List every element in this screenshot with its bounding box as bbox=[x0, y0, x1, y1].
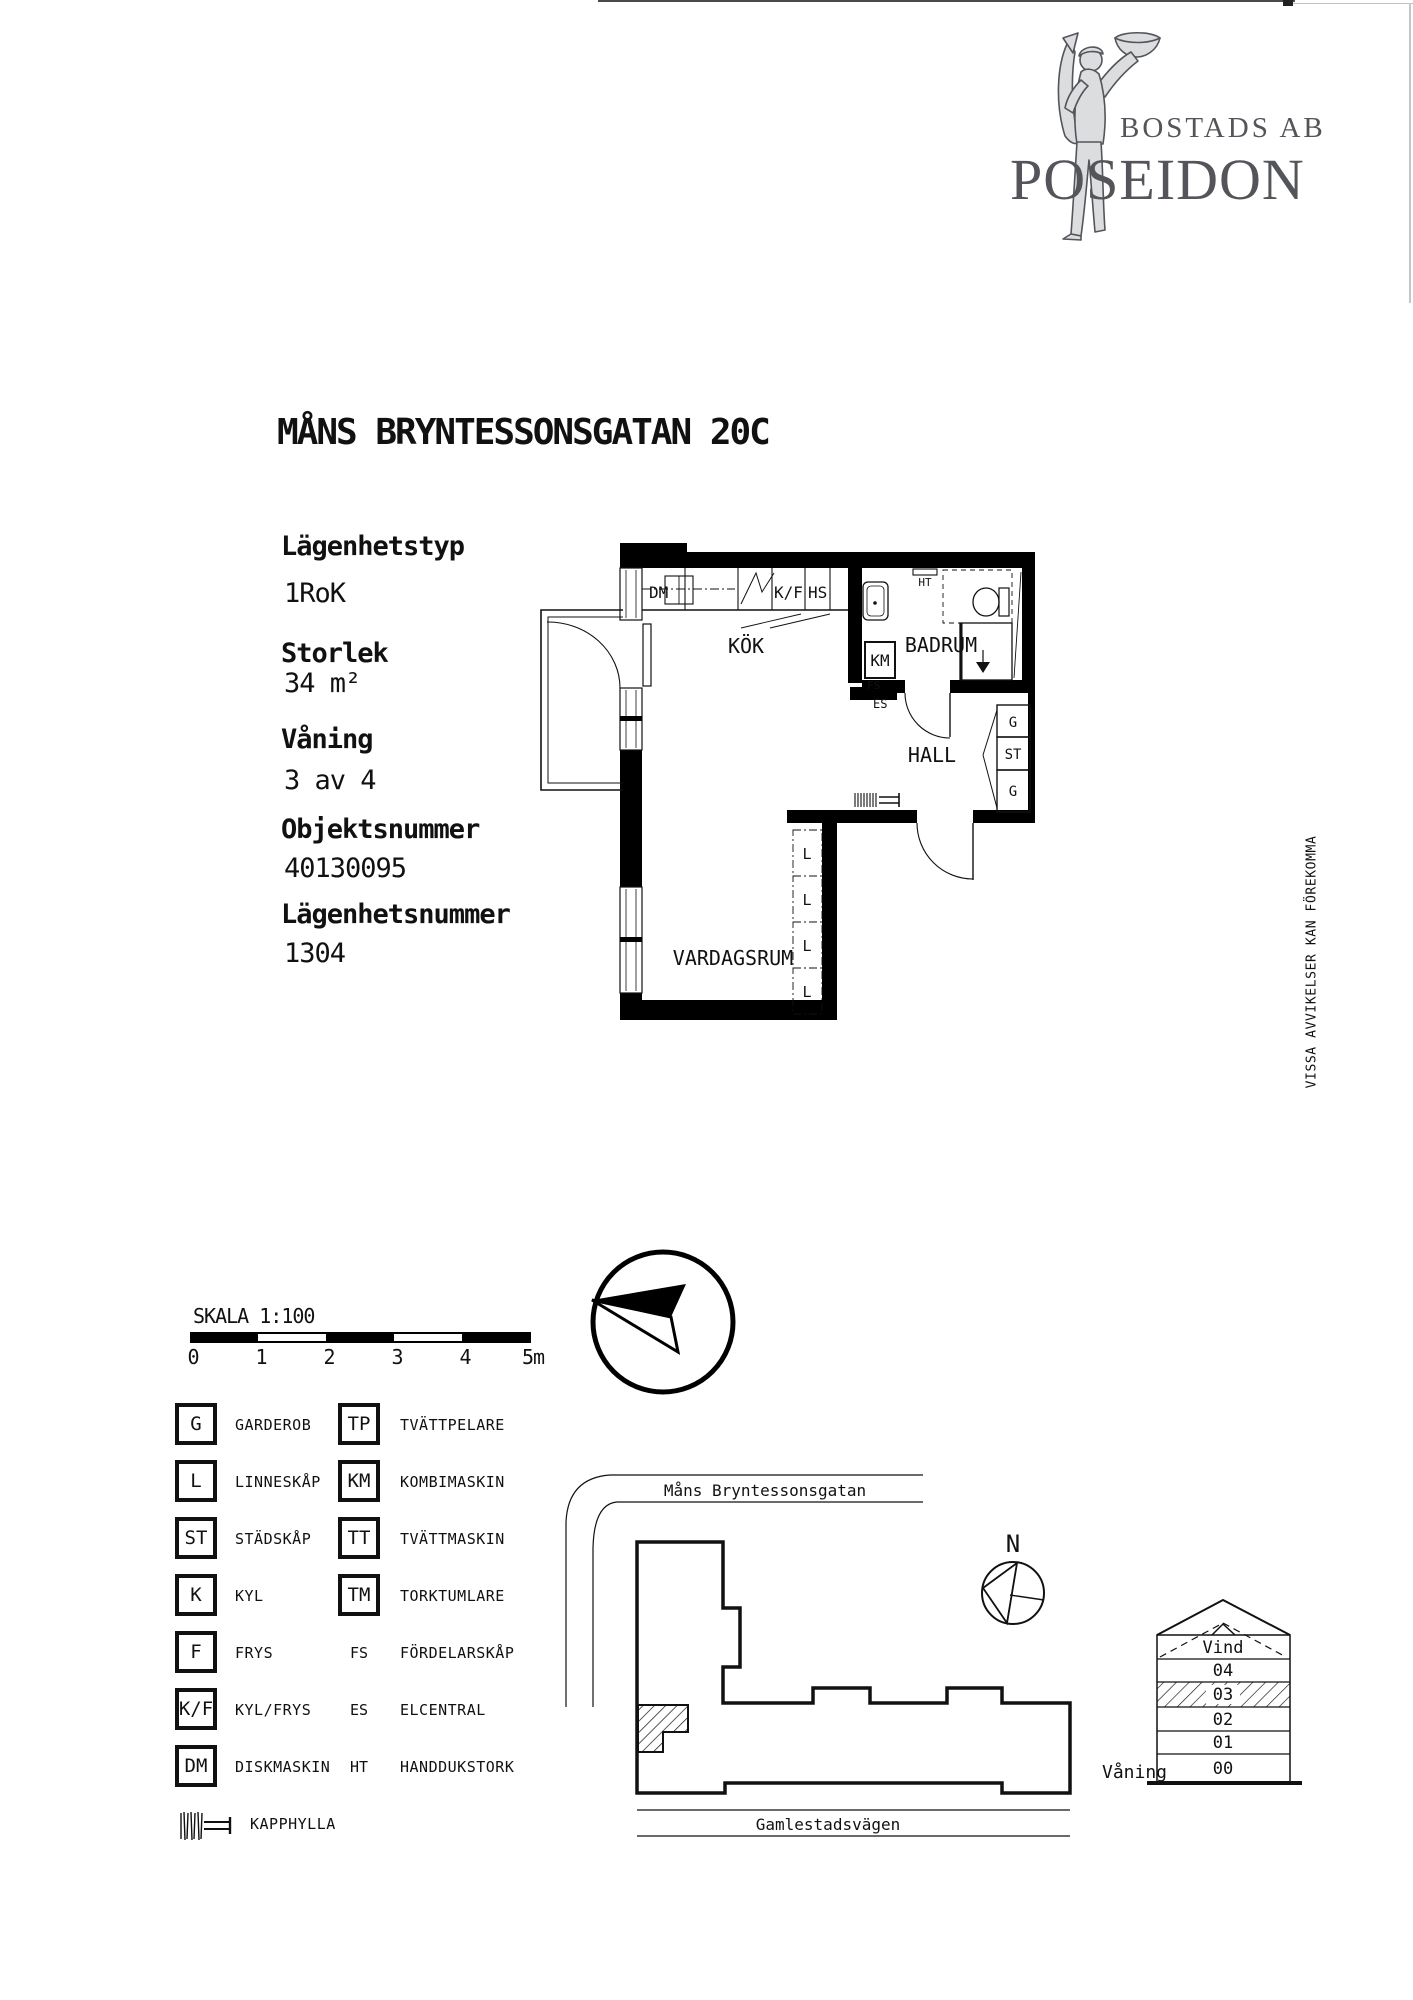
room-label-kitchen: KÖK bbox=[728, 634, 764, 658]
legend-symbol-fs: FS bbox=[338, 1644, 380, 1662]
legend-symbol-tm: TM bbox=[338, 1574, 380, 1616]
legend-symbol-tp: TP bbox=[338, 1403, 380, 1445]
legend-label-tvttmaskin: TVÄTTMASKIN bbox=[400, 1530, 505, 1548]
label-electrical-central: ES bbox=[873, 697, 887, 711]
legend-label-handdukstork: HANDDUKSTORK bbox=[400, 1758, 514, 1776]
legend-label-kylfrys: KYL/FRYS bbox=[235, 1701, 311, 1719]
legend-symbol-l: L bbox=[175, 1460, 217, 1502]
info-value-size: 34 m² bbox=[284, 668, 360, 699]
building-elevation: Vind 04 03 02 01 00 Våning bbox=[1090, 1590, 1320, 1800]
label-closet-g1: G bbox=[1009, 715, 1017, 731]
info-label-object-number: Objektsnummer bbox=[281, 814, 479, 845]
legend-label-kyl: KYL bbox=[235, 1587, 264, 1605]
shower-zone bbox=[943, 570, 1012, 623]
balcony-door-arc bbox=[547, 622, 620, 688]
label-fridge-freezer: K/F bbox=[774, 583, 803, 602]
legend-symbol-es: ES bbox=[338, 1701, 380, 1719]
legend-label-frdelarskp: FÖRDELARSKÅP bbox=[400, 1644, 514, 1662]
logo-brand-name: POSEIDON bbox=[1010, 146, 1305, 213]
label-washer: KM bbox=[870, 651, 889, 670]
legend-symbol-k: K bbox=[175, 1574, 217, 1616]
site-north-icon bbox=[982, 1562, 1044, 1624]
scale-label: SKALA 1:100 bbox=[193, 1304, 314, 1328]
legend-symbol-f: F bbox=[175, 1631, 217, 1673]
room-label-bathroom: BADRUM bbox=[905, 633, 977, 657]
floor-label-00: 00 bbox=[1213, 1759, 1233, 1779]
roof-outline bbox=[1157, 1600, 1290, 1635]
label-tall-cabinet: HS bbox=[808, 583, 827, 602]
towel-warmer-icon bbox=[913, 569, 937, 575]
label-linen-2: L bbox=[802, 891, 811, 909]
scale-tick-1: 1 bbox=[255, 1345, 266, 1369]
legend-label-tvttpelare: TVÄTTPELARE bbox=[400, 1416, 505, 1434]
label-distribution-cabinet: FS bbox=[867, 679, 880, 692]
disclaimer-text: VISSA AVVIKELSER KAN FÖREKOMMA bbox=[1305, 836, 1320, 1089]
hall-fixtures bbox=[855, 705, 1030, 880]
legend-label-frys: FRYS bbox=[235, 1644, 273, 1662]
scale-bar-segment bbox=[394, 1334, 462, 1341]
balcony-door-leaf bbox=[643, 624, 651, 686]
legend-label-diskmaskin: DISKMASKIN bbox=[235, 1758, 330, 1776]
scale-bar bbox=[190, 1332, 531, 1343]
building-footprint bbox=[637, 1542, 1070, 1793]
page-title: MÅNS BRYNTESSONSGATAN 20C bbox=[277, 412, 769, 453]
toilet-tank-icon bbox=[999, 588, 1009, 616]
coat-shelf-icon bbox=[178, 1810, 236, 1842]
scale-tick-2: 2 bbox=[323, 1345, 334, 1369]
floor-plan: DM K/F HS KÖK HT BADRUM KM FS ES HALL G … bbox=[525, 540, 1045, 1030]
legend-symbol-dm: DM bbox=[175, 1745, 217, 1787]
floor-label-03: 03 bbox=[1213, 1685, 1233, 1705]
scale-bar-segment bbox=[258, 1334, 326, 1341]
scan-edge-top-light bbox=[1290, 3, 1413, 4]
scale-tick-4: 4 bbox=[459, 1345, 470, 1369]
floor-label-vind: Vind bbox=[1203, 1638, 1244, 1658]
info-label-apartment-number: Lägenhetsnummer bbox=[281, 899, 510, 930]
coat-rack-icon bbox=[855, 793, 899, 807]
site-north-label: N bbox=[1006, 1530, 1020, 1558]
label-towel-warmer: HT bbox=[918, 576, 932, 589]
legend-label-stdskp: STÄDSKÅP bbox=[235, 1530, 311, 1548]
legend-symbol-km: KM bbox=[338, 1460, 380, 1502]
bathroom-door-arc bbox=[905, 693, 950, 738]
scale-ticks: 012345m bbox=[193, 1345, 543, 1369]
info-value-apartment-number: 1304 bbox=[284, 938, 345, 969]
label-closet-g2: G bbox=[1009, 784, 1017, 800]
scan-edge-right bbox=[1409, 3, 1411, 303]
room-label-living-room: VARDAGSRUM bbox=[673, 946, 793, 970]
logo-company-line: BOSTADS AB bbox=[1120, 112, 1326, 145]
scan-mark bbox=[1283, 0, 1293, 6]
street-label-bottom: Gamlestadsvägen bbox=[756, 1815, 901, 1834]
legend-label-elcentral: ELCENTRAL bbox=[400, 1701, 486, 1719]
toilet-icon bbox=[973, 588, 999, 616]
scale-tick-3: 3 bbox=[391, 1345, 402, 1369]
elevation-axis-label: Våning bbox=[1102, 1762, 1167, 1783]
legend-label-torktumlare: TORKTUMLARE bbox=[400, 1587, 505, 1605]
legend-symbol-tt: TT bbox=[338, 1517, 380, 1559]
info-label-apartment-type: Lägenhetstyp bbox=[281, 531, 464, 562]
legend-symbol-ht: HT bbox=[338, 1758, 380, 1776]
floorplan-sheet: BOSTADS AB POSEIDON MÅNS BRYNTESSONSGATA… bbox=[0, 0, 1413, 2000]
label-linen-3: L bbox=[802, 937, 811, 955]
floor-drain-icon bbox=[976, 662, 990, 673]
label-linen-1: L bbox=[802, 845, 811, 863]
info-value-object-number: 40130095 bbox=[284, 853, 406, 884]
legend-label-linneskp: LINNESKÅP bbox=[235, 1473, 321, 1491]
bowl-icon bbox=[1115, 33, 1160, 57]
label-dishwasher: DM bbox=[649, 583, 668, 602]
street-label-top: Måns Bryntessonsgatan bbox=[664, 1481, 866, 1500]
label-linen-4: L bbox=[802, 983, 811, 1001]
floor-label-01: 01 bbox=[1213, 1733, 1233, 1753]
entry-door-arc bbox=[917, 823, 973, 879]
info-value-apartment-type: 1RoK bbox=[284, 578, 345, 609]
info-label-size: Storlek bbox=[281, 638, 388, 669]
room-label-hall: HALL bbox=[908, 743, 956, 767]
scale-tick-0: 0 bbox=[187, 1345, 198, 1369]
site-plan: N Måns Bryntessonsgatan Gamlestadsvägen bbox=[560, 1460, 1080, 1850]
legend-label-kapphylla: KAPPHYLLA bbox=[250, 1815, 336, 1833]
legend-symbol-k-f: K/F bbox=[175, 1688, 217, 1730]
label-closet-st: ST bbox=[1005, 747, 1022, 763]
legend-symbol-g: G bbox=[175, 1403, 217, 1445]
scan-edge-top bbox=[598, 0, 1295, 2]
legend-symbol-st: ST bbox=[175, 1517, 217, 1559]
stove-icon bbox=[741, 573, 774, 604]
legend-label-kombimaskin: KOMBIMASKIN bbox=[400, 1473, 505, 1491]
scale-tick-5m: 5m bbox=[522, 1345, 544, 1369]
info-value-floor: 3 av 4 bbox=[284, 765, 376, 796]
floor-label-02: 02 bbox=[1213, 1710, 1233, 1730]
legend-label-garderob: GARDEROB bbox=[235, 1416, 311, 1434]
info-label-floor: Våning bbox=[281, 724, 373, 755]
plan-north-compass-icon bbox=[588, 1248, 738, 1398]
floor-label-04: 04 bbox=[1213, 1661, 1233, 1681]
